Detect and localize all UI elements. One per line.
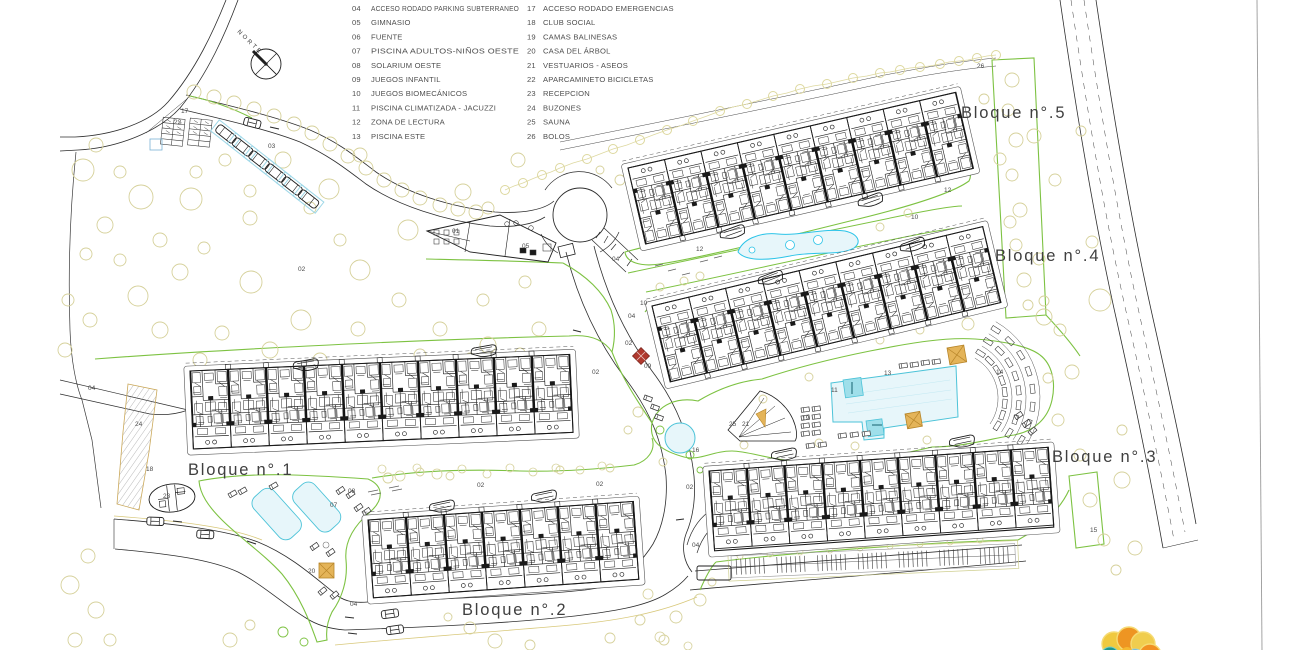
svg-text:CAMAS BALINESAS: CAMAS BALINESAS xyxy=(543,32,617,41)
svg-text:02: 02 xyxy=(592,369,600,376)
svg-text:SOLARIUM OESTE: SOLARIUM OESTE xyxy=(371,61,441,70)
svg-text:04: 04 xyxy=(88,385,96,392)
svg-text:04: 04 xyxy=(350,601,358,608)
svg-text:18: 18 xyxy=(527,18,536,27)
svg-text:17: 17 xyxy=(181,108,189,115)
svg-text:04: 04 xyxy=(692,542,700,549)
svg-text:BOLOS: BOLOS xyxy=(543,132,570,141)
svg-text:05: 05 xyxy=(352,18,361,27)
svg-text:06: 06 xyxy=(352,32,361,41)
svg-text:RECEPCION: RECEPCION xyxy=(543,89,590,98)
svg-text:25: 25 xyxy=(527,118,536,127)
svg-text:PISCINA ADULTOS-NIÑOS OESTE: PISCINA ADULTOS-NIÑOS OESTE xyxy=(371,47,519,56)
svg-text:10: 10 xyxy=(352,89,361,98)
svg-text:ACCESO RODADO PARKING SUBTERRA: ACCESO RODADO PARKING SUBTERRANEO xyxy=(371,4,519,13)
svg-text:Bloque n°.5: Bloque n°.5 xyxy=(961,104,1066,122)
svg-text:NORTE: NORTE xyxy=(236,29,264,56)
svg-text:04: 04 xyxy=(628,313,636,320)
svg-text:07: 07 xyxy=(352,47,361,56)
svg-text:BUZONES: BUZONES xyxy=(543,103,581,112)
svg-text:08: 08 xyxy=(352,61,361,70)
svg-text:22: 22 xyxy=(527,75,536,84)
svg-text:Bloque n°.3: Bloque n°.3 xyxy=(1052,448,1157,466)
svg-text:ZONA DE LECTURA: ZONA DE LECTURA xyxy=(371,118,446,127)
svg-text:05: 05 xyxy=(522,243,530,250)
svg-text:20: 20 xyxy=(527,47,536,56)
svg-text:02: 02 xyxy=(686,484,694,491)
svg-text:21: 21 xyxy=(527,61,536,70)
svg-text:CASA DEL ÁRBOL: CASA DEL ÁRBOL xyxy=(543,47,611,56)
svg-text:20: 20 xyxy=(308,568,316,575)
svg-text:02: 02 xyxy=(298,266,306,273)
svg-text:09: 09 xyxy=(644,363,652,370)
svg-text:11: 11 xyxy=(831,387,838,394)
svg-text:Bloque n°.1: Bloque n°.1 xyxy=(188,461,293,479)
svg-text:24: 24 xyxy=(135,421,143,428)
svg-text:25: 25 xyxy=(729,421,737,428)
svg-text:22: 22 xyxy=(174,119,182,126)
svg-text:FUENTE: FUENTE xyxy=(371,32,403,41)
svg-text:04: 04 xyxy=(352,4,361,13)
svg-text:03: 03 xyxy=(268,143,276,150)
svg-text:SAUNA: SAUNA xyxy=(543,118,571,127)
svg-text:10: 10 xyxy=(911,214,919,221)
svg-text:04: 04 xyxy=(612,256,620,263)
svg-text:18: 18 xyxy=(146,466,154,473)
svg-text:08: 08 xyxy=(348,488,356,495)
svg-text:14: 14 xyxy=(996,369,1004,376)
svg-text:12: 12 xyxy=(352,118,361,127)
svg-text:02: 02 xyxy=(477,482,485,489)
svg-text:PISCINA CLIMATIZADA - JACUZZI: PISCINA CLIMATIZADA - JACUZZI xyxy=(371,103,496,112)
svg-text:GIMNASIO: GIMNASIO xyxy=(371,18,411,27)
svg-text:17: 17 xyxy=(527,4,536,13)
svg-text:13: 13 xyxy=(884,370,892,377)
svg-text:VESTUARIOS - ASEOS: VESTUARIOS - ASEOS xyxy=(543,61,628,70)
svg-text:09: 09 xyxy=(352,75,361,84)
svg-text:21: 21 xyxy=(742,421,750,428)
svg-text:11: 11 xyxy=(352,103,360,112)
svg-text:13: 13 xyxy=(352,132,361,141)
svg-text:12: 12 xyxy=(696,246,704,253)
svg-text:19: 19 xyxy=(802,415,810,422)
svg-text:15: 15 xyxy=(1090,527,1098,534)
svg-text:07: 07 xyxy=(330,502,338,509)
svg-text:01: 01 xyxy=(452,228,460,235)
svg-text:16: 16 xyxy=(692,447,700,454)
svg-text:10: 10 xyxy=(640,300,648,307)
svg-text:23: 23 xyxy=(163,493,171,500)
svg-text:ACCESO RODADO EMERGENCIAS: ACCESO RODADO EMERGENCIAS xyxy=(543,4,674,13)
svg-text:JUEGOS BIOMECÁNICOS: JUEGOS BIOMECÁNICOS xyxy=(371,89,467,98)
svg-text:26: 26 xyxy=(977,63,985,70)
svg-text:CLUB SOCIAL: CLUB SOCIAL xyxy=(543,18,595,27)
svg-text:24: 24 xyxy=(527,103,536,112)
svg-text:02: 02 xyxy=(596,481,604,488)
svg-text:Bloque n°.4: Bloque n°.4 xyxy=(995,247,1100,265)
svg-text:02: 02 xyxy=(625,340,633,347)
svg-text:JUEGOS INFANTIL: JUEGOS INFANTIL xyxy=(371,75,441,84)
svg-text:19: 19 xyxy=(527,32,536,41)
svg-text:Bloque n°.2: Bloque n°.2 xyxy=(462,601,567,619)
svg-text:APARCAMINETO BICICLETAS: APARCAMINETO BICICLETAS xyxy=(543,75,654,84)
svg-text:12: 12 xyxy=(944,187,952,194)
svg-text:23: 23 xyxy=(527,89,536,98)
svg-text:PISCINA ESTE: PISCINA ESTE xyxy=(371,132,425,141)
svg-text:26: 26 xyxy=(527,132,536,141)
